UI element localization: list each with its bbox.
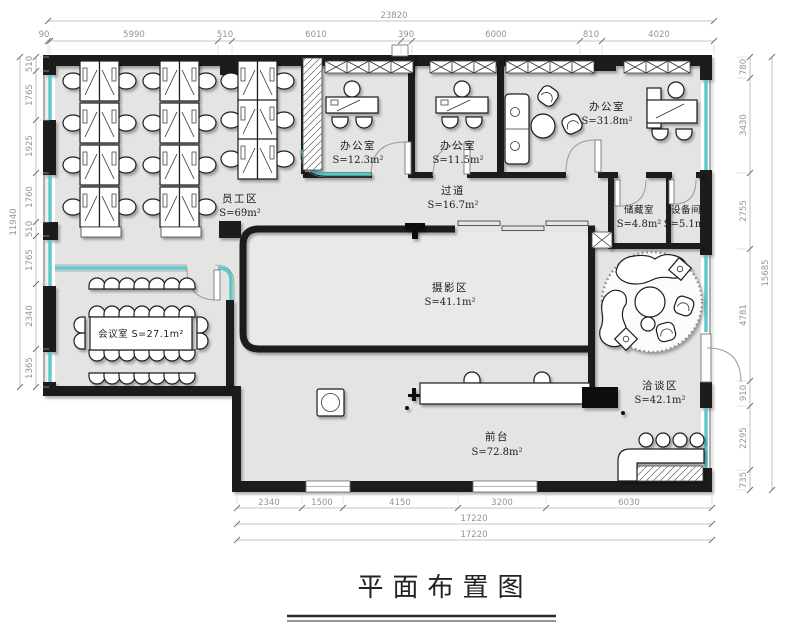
label-office-b-name: 办公室	[440, 139, 476, 152]
dimensions-right: 780 3430 2755 4781 910 2295 735 15685	[737, 54, 775, 493]
column	[219, 221, 241, 238]
svg-text:1765: 1765	[25, 249, 35, 271]
svg-text:17220: 17220	[460, 530, 487, 540]
svg-text:510: 510	[25, 56, 35, 72]
label-office-a-area: S=12.3m²	[333, 155, 384, 166]
floor-plan-drawing: 员工区 S=69m² 办公室 S=12.3m² 办公室 S=11.5m² 办公室…	[0, 0, 800, 639]
side-table	[641, 317, 655, 331]
svg-text:90: 90	[39, 30, 50, 40]
svg-text:15685: 15685	[761, 259, 771, 286]
svg-text:510: 510	[217, 30, 233, 40]
label-office-b-area: S=11.5m²	[433, 155, 484, 166]
label-negotiation-area: S=42.1m²	[635, 395, 686, 406]
svg-text:510: 510	[25, 221, 35, 237]
title-text: 平面布置图	[357, 573, 532, 603]
label-office-c-area: S=31.8m²	[582, 116, 633, 127]
svg-text:4150: 4150	[389, 498, 411, 508]
svg-text:23820: 23820	[380, 11, 407, 21]
label-corridor-name: 过道	[441, 184, 465, 197]
floor-plan-page: 员工区 S=69m² 办公室 S=12.3m² 办公室 S=11.5m² 办公室…	[0, 0, 800, 639]
svg-text:6030: 6030	[618, 498, 640, 508]
svg-text:735: 735	[739, 472, 749, 488]
label-office-c-name: 办公室	[589, 100, 625, 113]
plant-stand	[317, 389, 344, 416]
svg-text:810: 810	[583, 30, 599, 40]
label-meeting: 会议室 S=27.1m²	[98, 328, 184, 340]
svg-text:4781: 4781	[739, 304, 749, 326]
svg-text:6000: 6000	[485, 30, 507, 40]
drawing-title: 平面布置图	[287, 573, 556, 621]
svg-text:17220: 17220	[460, 514, 487, 524]
svg-text:1925: 1925	[25, 135, 35, 157]
svg-text:3430: 3430	[739, 114, 749, 136]
bottom-wall	[232, 481, 712, 492]
label-negotiation-name: 洽谈区	[642, 379, 678, 392]
entrance-door-arc	[707, 348, 741, 382]
svg-text:3200: 3200	[491, 498, 513, 508]
round-table	[531, 114, 555, 138]
center-table	[635, 287, 665, 317]
svg-text:1760: 1760	[25, 186, 35, 208]
svg-text:11940: 11940	[9, 208, 19, 235]
label-photo-area: S=41.1m²	[425, 297, 476, 308]
label-office-a-name: 办公室	[340, 139, 376, 152]
svg-text:390: 390	[398, 30, 414, 40]
label-corridor-area: S=16.7m²	[428, 200, 479, 211]
photo-area-floor	[246, 232, 592, 346]
svg-text:1500: 1500	[311, 498, 333, 508]
dimensions-bottom: 2340 1500 4150 3200 6030 17220 17220	[234, 495, 715, 543]
label-storage-name: 储藏室	[624, 204, 654, 216]
label-staff-name: 员工区	[222, 193, 258, 205]
label-equipment-name: 设备间	[671, 204, 701, 216]
bottom-left-wall	[45, 386, 241, 396]
svg-text:2755: 2755	[739, 200, 749, 222]
label-reception-name: 前台	[485, 430, 509, 443]
label-reception-area: S=72.8m²	[472, 447, 523, 458]
label-photo-name: 摄影区	[432, 281, 468, 294]
svg-text:5990: 5990	[123, 30, 145, 40]
label-equipment-area: S=5.1m²	[664, 219, 709, 230]
svg-text:2340: 2340	[258, 498, 280, 508]
svg-text:6010: 6010	[305, 30, 327, 40]
lounge-circle	[600, 252, 702, 352]
svg-text:4020: 4020	[648, 30, 670, 40]
svg-text:780: 780	[739, 59, 749, 75]
label-staff-area: S=69m²	[219, 208, 260, 219]
svg-text:2295: 2295	[739, 427, 749, 449]
reception-cabinet	[582, 387, 618, 408]
svg-text:2340: 2340	[25, 305, 35, 327]
svg-text:910: 910	[739, 385, 749, 401]
left-lower-wall	[232, 386, 241, 492]
svg-text:1765: 1765	[25, 84, 35, 106]
dimensions-top: 23820 90 5990 510 6010 390 6000 810 4020	[39, 11, 717, 54]
label-storage-area: S=4.8m²	[617, 219, 662, 230]
svg-text:1365: 1365	[25, 357, 35, 379]
